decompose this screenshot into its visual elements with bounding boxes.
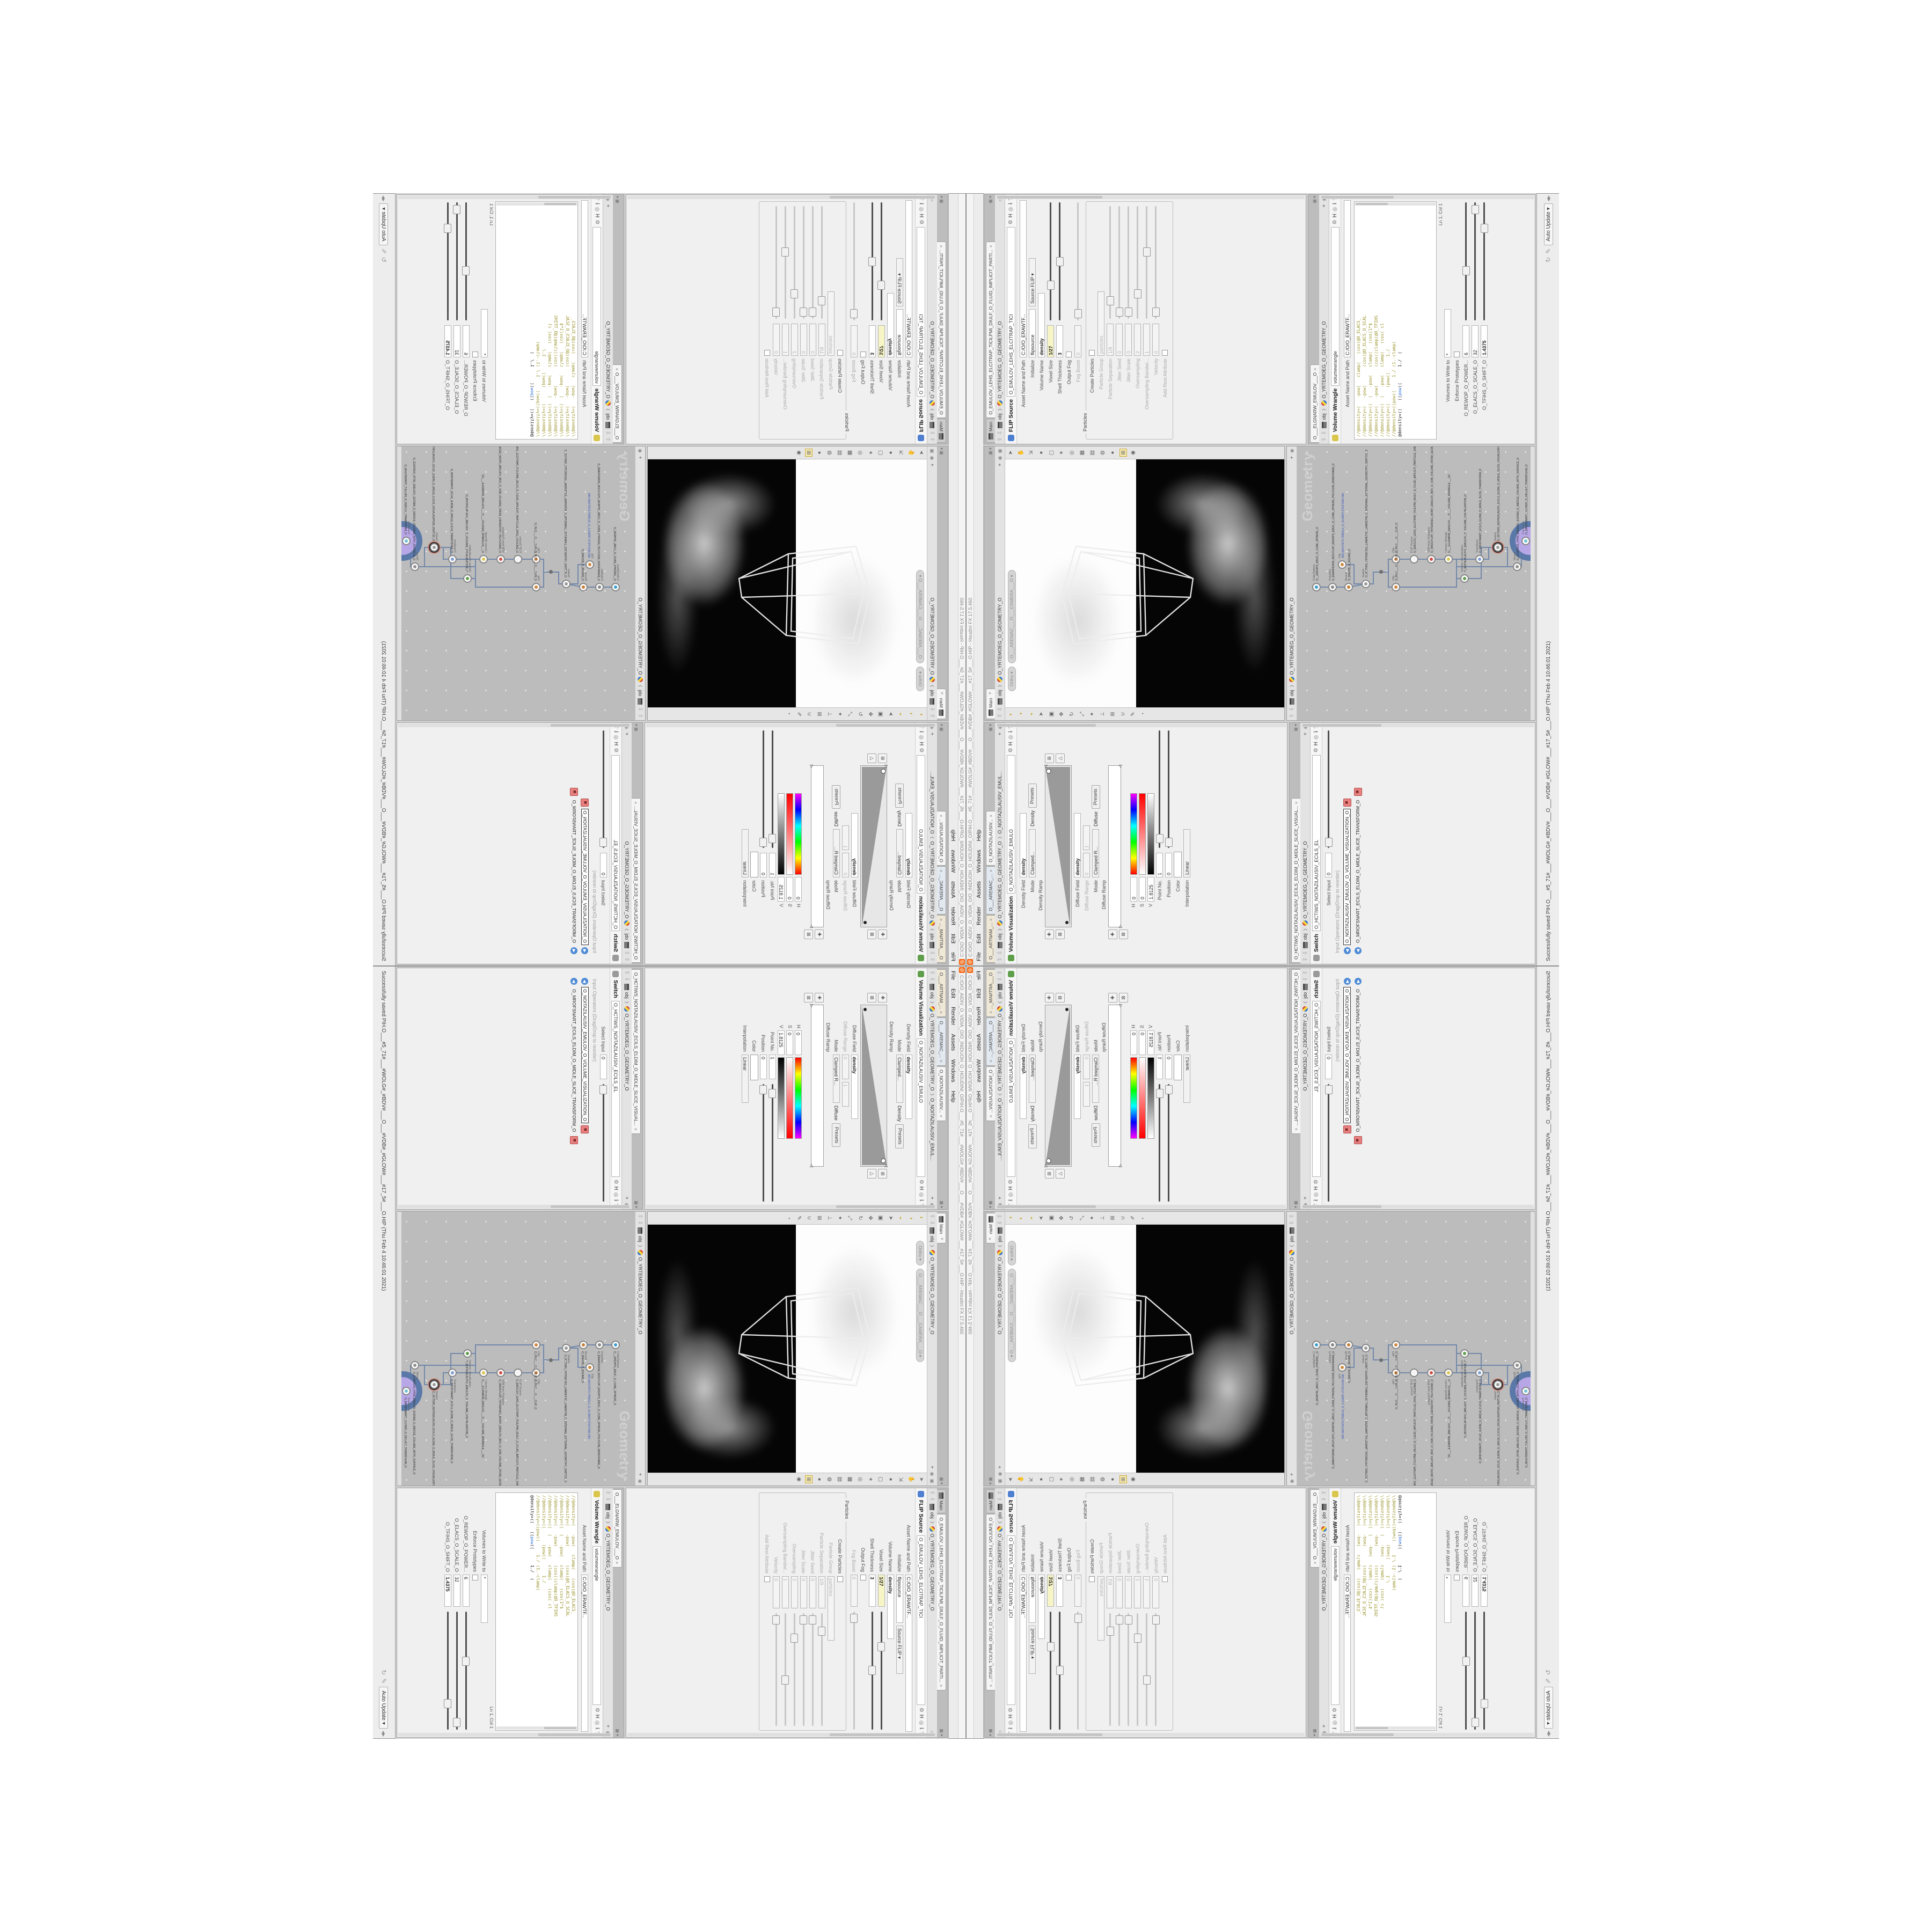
- search-icon[interactable]: ◎: [1313, 1192, 1319, 1197]
- rotate-handle-icon[interactable]: ↻: [856, 1214, 863, 1222]
- scale-slider[interactable]: [1474, 1612, 1476, 1730]
- node-transform[interactable]: [1475, 555, 1484, 563]
- menu-edit[interactable]: Edit: [976, 984, 982, 1002]
- position-slider[interactable]: [763, 730, 764, 848]
- particle-group-input[interactable]: particles: [828, 291, 835, 356]
- node-name-field[interactable]: O_HCTIWS_NOITAZILAUSIV_ECILS_EL: [1312, 1001, 1321, 1177]
- node-merge[interactable]: [1513, 562, 1521, 571]
- close-icon[interactable]: ✕: [990, 1684, 993, 1687]
- view-arrow-icon[interactable]: ➤: [917, 1475, 925, 1483]
- cube-view-icon[interactable]: ▣: [997, 449, 1003, 453]
- cage-display-icon[interactable]: ▦: [1079, 449, 1086, 457]
- point-no-input[interactable]: 1: [769, 853, 776, 877]
- position-input[interactable]: 0: [760, 1055, 767, 1079]
- info-icon[interactable]: ℹ: [594, 203, 600, 205]
- scrollbar[interactable]: [1531, 1212, 1535, 1485]
- close-icon[interactable]: ✕: [1314, 1561, 1318, 1564]
- shaded-lamp-icon[interactable]: ◑: [907, 1214, 914, 1222]
- node-switch[interactable]: [562, 1344, 570, 1352]
- volume-name-input[interactable]: density: [887, 293, 894, 357]
- scale-input[interactable]: 32: [453, 1575, 460, 1607]
- value-gradient-bar[interactable]: [1147, 793, 1154, 875]
- close-icon[interactable]: ✕: [990, 869, 993, 873]
- handle-badge-icon[interactable]: ▣: [876, 1214, 884, 1222]
- nav-up-icon[interactable]: ⇧: [997, 957, 1003, 962]
- tab-flip-source[interactable]: O_EMULOV_LEHS_ELCITRAP_TICILPMI_DIULF_O_…: [986, 1514, 995, 1690]
- node-switch[interactable]: [1494, 543, 1502, 552]
- node-switch[interactable]: [1362, 1344, 1370, 1352]
- fog-boost-slider[interactable]: [1077, 202, 1079, 320]
- tab-main[interactable]: Main: [986, 1489, 995, 1513]
- projection-pill[interactable]: Ortho ▾: [916, 667, 924, 691]
- node-transform[interactable]: [402, 1387, 411, 1395]
- node-switch[interactable]: [1362, 580, 1370, 588]
- oversampling-slider[interactable]: [1137, 1613, 1138, 1726]
- snap-grid-icon[interactable]: ⊞: [815, 710, 823, 718]
- gear-icon[interactable]: ⚙: [918, 1180, 924, 1184]
- scrollbar[interactable]: [1355, 1726, 1436, 1730]
- select-arrow-icon[interactable]: ➤: [887, 1214, 894, 1222]
- oversampling-input[interactable]: 2: [1134, 1576, 1141, 1608]
- reorder-icon[interactable]: ◀: [582, 978, 589, 985]
- pane-tab-controls-icon[interactable]: ▦ ▾: [1312, 196, 1317, 203]
- presets-button[interactable]: Presets: [896, 1124, 904, 1148]
- projection-pill[interactable]: Ortho ▾: [1008, 667, 1016, 691]
- persp-camera-icon[interactable]: ◉: [1130, 449, 1137, 457]
- jitter-seed-slider[interactable]: [812, 1613, 814, 1726]
- asset-path-field[interactable]: C:/O/O_ERAWTF...: [1020, 1575, 1027, 1732]
- torus-prim-icon[interactable]: ◎: [1069, 1475, 1076, 1483]
- camera-pill[interactable]: O___AREMAC___O___CAMERA___O ▾: [916, 1269, 924, 1362]
- power-slider[interactable]: [1465, 202, 1467, 320]
- reorder-icon[interactable]: ◀: [1355, 947, 1362, 954]
- search-icon[interactable]: ◎: [613, 735, 619, 740]
- value-input[interactable]: 1.8125: [1147, 1030, 1154, 1055]
- color-swatch[interactable]: [750, 1055, 758, 1080]
- shift-slider[interactable]: [1483, 202, 1485, 320]
- pan-hand-icon[interactable]: ✋: [1018, 1475, 1025, 1483]
- search-icon[interactable]: ◎: [594, 1721, 600, 1725]
- ramp-handle-icon[interactable]: ◁: [1118, 1164, 1123, 1167]
- shell-thickness-input[interactable]: 3: [1056, 1575, 1063, 1607]
- handle-badge-icon[interactable]: ▣: [1048, 710, 1056, 718]
- recook-icon[interactable]: ↻: [380, 257, 387, 262]
- breadcrumb-root[interactable]: obj: [997, 690, 1002, 696]
- diffuse-ramp-widget[interactable]: ✚⊠ ▷ ◁: [1108, 728, 1128, 939]
- density-ramp-gradient[interactable]: ◁: [1045, 1005, 1072, 1167]
- nav-up-icon[interactable]: ⇧: [930, 970, 935, 975]
- nav-down-icon[interactable]: ⇩: [1302, 950, 1308, 955]
- mode-dropdown[interactable]: Clamped...: [1029, 1055, 1036, 1103]
- breadcrumb-root[interactable]: obj: [930, 992, 935, 999]
- view-arrow-icon[interactable]: ➤: [1007, 449, 1015, 457]
- hue-input[interactable]: 0: [795, 1030, 802, 1055]
- breadcrumb-node[interactable]: O_YRTEMOEG_O_GEOMETRY_O: [638, 1257, 643, 1335]
- network-canvas[interactable]: Geometry CubeSphereO__EREHPS_EBUC_O_CUBE…: [1297, 1212, 1531, 1485]
- value-gradient-bar[interactable]: [1147, 1057, 1154, 1139]
- info-icon[interactable]: ℹ: [1008, 203, 1014, 205]
- oversampling-input[interactable]: 2: [1134, 324, 1141, 356]
- menu-windows[interactable]: Windows: [950, 1055, 957, 1087]
- particle-group-input[interactable]: particles: [1097, 1576, 1104, 1641]
- breadcrumb-root[interactable]: obj: [1321, 413, 1327, 420]
- asset-path-field[interactable]: C:/O/O_ERAWTF...: [905, 1575, 912, 1732]
- pin-icon[interactable]: ✦: [624, 1196, 630, 1201]
- interpolation-dropdown[interactable]: Linear: [1183, 829, 1190, 877]
- headlight-icon[interactable]: ◐: [1007, 1214, 1015, 1222]
- tab-mantra[interactable]: O___ARTNAM_...✕: [937, 969, 946, 1017]
- headlight-icon[interactable]: ◐: [917, 1214, 925, 1222]
- input-operator-0[interactable]: O_NOITAZILAUSIV_EMULOV_O_VOLUME_VISUALIZ…: [1343, 987, 1351, 1123]
- density-field-input[interactable]: density: [905, 1055, 912, 1119]
- breadcrumb-root[interactable]: obj: [997, 933, 1002, 940]
- search-icon[interactable]: ◎: [594, 207, 600, 211]
- pin-icon[interactable]: ✦: [605, 1724, 611, 1729]
- follow-icon[interactable]: ◉: [1289, 1479, 1295, 1483]
- tab-visualization[interactable]: O_NOITAZILAUSIV...✕: [986, 1066, 995, 1121]
- node-name-field[interactable]: O_NOITAZILAUSIV_EMULO: [1007, 1038, 1015, 1177]
- particle-separation-input[interactable]: 1/9: [818, 324, 825, 356]
- color-swatch[interactable]: [750, 852, 758, 877]
- nav-up-icon[interactable]: ⇧: [1302, 970, 1308, 975]
- snap-grid-icon[interactable]: ⊞: [1109, 1214, 1117, 1222]
- saturation-input[interactable]: 0: [787, 1030, 794, 1055]
- info-icon[interactable]: ℹ: [1008, 731, 1014, 733]
- scale-input[interactable]: 32: [453, 325, 460, 357]
- breadcrumb-node[interactable]: O_YRTEMOEG_O_GEOMETRY_O: [930, 1014, 935, 1091]
- select-arrow-icon[interactable]: ➤: [1038, 710, 1045, 718]
- tab-volume-wrangle[interactable]: O___ELGNARW_EMULOV___O✕: [613, 364, 622, 443]
- info-icon[interactable]: ℹ: [1332, 203, 1338, 205]
- close-icon[interactable]: ✕: [990, 1115, 993, 1118]
- jitter-seed-input[interactable]: 0: [1116, 324, 1123, 356]
- scrollbar[interactable]: [496, 1726, 577, 1730]
- projection-pill[interactable]: Ortho ▾: [1008, 1241, 1016, 1265]
- nav-up-icon[interactable]: ⇧: [997, 714, 1003, 718]
- add-point-icon[interactable]: ✚: [1108, 993, 1117, 1002]
- breadcrumb-node[interactable]: O_YRTEMOEG_O_GEOMETRY_O: [1289, 598, 1294, 675]
- diffuse-ramp-widget[interactable]: ✚⊠ ▷ ◁: [804, 993, 824, 1204]
- geometry-sphere-icon[interactable]: ●: [1038, 1475, 1045, 1483]
- voxel-size-input[interactable]: 1/27: [1047, 325, 1054, 357]
- pan-hand-icon[interactable]: ✋: [1018, 449, 1025, 457]
- value-input[interactable]: 1.8125: [778, 1030, 785, 1055]
- sketch-lamp-icon[interactable]: ◒: [897, 1214, 904, 1222]
- pane-tab-controls-icon[interactable]: ▦ ▾: [988, 1477, 993, 1484]
- menu-windows[interactable]: Windows: [976, 1055, 982, 1087]
- node-vdb-from-polygons[interactable]: [1427, 555, 1436, 563]
- gear-icon[interactable]: ⚙: [918, 219, 924, 224]
- follow-icon[interactable]: ◉: [930, 456, 935, 460]
- snap-grid-icon[interactable]: ⊞: [1109, 710, 1117, 718]
- hue-input[interactable]: 0: [1130, 877, 1137, 902]
- menu-edit[interactable]: Edit: [950, 984, 957, 1002]
- saturation-input[interactable]: 0: [787, 877, 794, 902]
- info-icon[interactable]: ℹ: [918, 203, 924, 205]
- initialize-field[interactable]: flipsource: [896, 309, 903, 357]
- close-icon[interactable]: ✕: [990, 1011, 993, 1014]
- breadcrumb-node[interactable]: O_YRTEMOEG_O_GEOMETRY_O: [1321, 321, 1327, 399]
- follow-icon[interactable]: ◉: [638, 449, 643, 453]
- recook-icon[interactable]: ↻: [1545, 1670, 1552, 1675]
- enforce-prototypes-checkbox[interactable]: [1454, 1575, 1460, 1580]
- axis-gnomon-icon[interactable]: ⊥: [825, 710, 833, 718]
- nav-up-icon[interactable]: ⇧: [997, 437, 1003, 442]
- remove-point-icon[interactable]: ⊠: [804, 930, 813, 939]
- ramp-handle-icon[interactable]: ▷: [1118, 1004, 1123, 1007]
- menu-render[interactable]: Render: [950, 1002, 957, 1029]
- breadcrumb-node[interactable]: O_YRTEMOEG_O_GEOMETRY_O: [997, 1257, 1002, 1335]
- scrollbar[interactable]: [496, 202, 577, 206]
- breadcrumb-node[interactable]: O_YRTEMOEG_O_GEOMETRY_O: [638, 598, 643, 675]
- axis-gnomon-icon[interactable]: ⊥: [1099, 710, 1107, 718]
- gear-icon[interactable]: ⚙: [1332, 1708, 1338, 1713]
- wire-cube-icon[interactable]: ▢: [876, 1475, 884, 1483]
- tab-camera[interactable]: O___AREMAC_...✕: [937, 1018, 946, 1066]
- breadcrumb-node[interactable]: O_YRTEMOEG_O_GEOMETRY_O: [605, 1534, 611, 1611]
- info-icon[interactable]: ℹ: [594, 1728, 600, 1730]
- breadcrumb-node[interactable]: O_YRTEMOEG_O_GEOMETRY_O: [605, 321, 611, 399]
- node-merge[interactable]: [411, 1361, 419, 1370]
- velocity-slider[interactable]: [775, 206, 777, 319]
- density-ramp-gradient[interactable]: ◁: [860, 1005, 887, 1167]
- node-volume-wrangle[interactable]: [479, 1368, 488, 1377]
- viewport-canvas[interactable]: ◐◑◒➤▣✥↻⤢✦⊥⊞∪✎◔ ➤✋⇲●▢✶◎▦▤◍●⊞◉: [648, 1212, 927, 1485]
- pin-icon[interactable]: ✦: [1321, 204, 1327, 208]
- nav-up-icon[interactable]: ⇧: [930, 957, 935, 962]
- menu-edit[interactable]: Edit: [950, 930, 957, 948]
- gear-icon[interactable]: ⚙: [1332, 219, 1338, 224]
- particle-group-input[interactable]: particles: [828, 1576, 835, 1641]
- close-icon[interactable]: ✕: [990, 918, 993, 921]
- node-file[interactable]: [586, 560, 594, 569]
- close-icon[interactable]: ✕: [939, 1684, 942, 1687]
- add-rest-checkbox[interactable]: [764, 1576, 770, 1582]
- particle-separation-slider[interactable]: [821, 206, 823, 319]
- jitter-seed-slider[interactable]: [1118, 206, 1120, 319]
- shell-thickness-slider[interactable]: [1059, 1612, 1060, 1730]
- initialize-dropdown[interactable]: Source FLIP ▾: [1029, 1626, 1036, 1674]
- delete-icon[interactable]: ✖: [581, 1125, 589, 1133]
- cube-view-icon[interactable]: ▣: [997, 1479, 1003, 1483]
- breadcrumb-root[interactable]: obj: [605, 413, 611, 420]
- scrollbar[interactable]: [627, 195, 936, 199]
- breadcrumb-root[interactable]: obj: [997, 1512, 1002, 1519]
- nav-up-icon[interactable]: ⇧: [624, 970, 630, 975]
- ramp-handle-icon[interactable]: ◁: [1118, 765, 1123, 768]
- node-volume-visualization[interactable]: [463, 574, 472, 583]
- pane-tab-controls-icon[interactable]: ▦ ▾: [988, 724, 993, 731]
- menu-assets[interactable]: Assets: [976, 1029, 982, 1055]
- node-volume-wrangle[interactable]: [1444, 1368, 1453, 1377]
- tab-visualization[interactable]: O_NOITAZILAUSIV...✕: [986, 811, 995, 866]
- remove-point-icon[interactable]: ⊠: [1119, 993, 1128, 1002]
- breadcrumb-node[interactable]: O_YRTEMOEG_O_GEOMETRY_O: [930, 598, 935, 675]
- diffuse-range-max[interactable]: 1: [1083, 1082, 1090, 1107]
- input-operator-0[interactable]: O_NOITAZILAUSIV_EMULOV_O_VOLUME_VISUALIZ…: [581, 809, 589, 945]
- node-name-field[interactable]: O_NOITAZILAUSIV_EMULO: [917, 755, 926, 894]
- scale-slider[interactable]: [456, 202, 458, 320]
- node-merge[interactable]: [411, 562, 419, 571]
- rotate-handle-icon[interactable]: ↻: [856, 710, 863, 718]
- handle-badge-icon[interactable]: ▣: [1048, 1214, 1056, 1222]
- tab-visualization[interactable]: O_NOITAZILAUSIV...✕: [937, 1066, 946, 1121]
- initialize-field[interactable]: flipsource: [1029, 1575, 1036, 1623]
- presets-button[interactable]: Presets: [1028, 784, 1037, 808]
- diffuse-field-input[interactable]: density: [851, 813, 858, 877]
- select-input-field[interactable]: 0: [600, 1055, 607, 1079]
- delete-icon[interactable]: ✖: [581, 799, 589, 807]
- point-no-slider[interactable]: [1159, 730, 1160, 848]
- menu-help[interactable]: Help: [976, 1087, 982, 1107]
- diffuse-mode-dropdown[interactable]: Clamped R...: [833, 1055, 840, 1103]
- node-name-field[interactable]: O_HCTIWS_NOITAZILAUSIV_ECILS_EL: [612, 1001, 620, 1177]
- follow-icon[interactable]: ◉: [997, 1472, 1003, 1476]
- close-icon[interactable]: ✕: [939, 1011, 942, 1014]
- quad-view-grid-icon[interactable]: ⊞: [1119, 1475, 1127, 1483]
- nav-up-icon[interactable]: ⇧: [930, 1490, 935, 1495]
- menu-file[interactable]: File: [976, 948, 982, 965]
- density-field-input[interactable]: density: [1020, 813, 1027, 877]
- nav-down-icon[interactable]: ⇩: [1321, 430, 1327, 435]
- pin-icon[interactable]: ✦: [1302, 732, 1308, 736]
- jitter-seed-input[interactable]: 0: [1116, 1576, 1123, 1608]
- nav-down-icon[interactable]: ⇩: [997, 707, 1003, 711]
- breadcrumb-root[interactable]: obj: [638, 1236, 643, 1242]
- breadcrumb-node[interactable]: O_YRTEMOEG_O_GEOMETRY_O: [1302, 1014, 1308, 1091]
- info-icon[interactable]: ℹ: [613, 1199, 619, 1202]
- breadcrumb-root[interactable]: obj: [997, 413, 1002, 420]
- cook-brush-icon[interactable]: ✎: [380, 248, 387, 254]
- position-slider[interactable]: [1168, 730, 1169, 848]
- projection-pill[interactable]: Ortho ▾: [916, 1241, 924, 1265]
- breadcrumb-node[interactable]: O_YRTEMOEG_O_GEOMETRY_O: [997, 1014, 1002, 1091]
- scrollbar[interactable]: [646, 723, 936, 727]
- breadcrumb-root[interactable]: obj: [930, 933, 935, 940]
- pane-tab-controls-icon[interactable]: ▦ ▾: [616, 1729, 620, 1736]
- input-operator-1[interactable]: O_MROFSNART_ECILS_ELDIM_O_MIDLE_SLICE_TR…: [570, 987, 578, 1134]
- jitter-seed-input[interactable]: 0: [809, 1576, 816, 1608]
- particle-separation-input[interactable]: 1/9: [1107, 1576, 1114, 1608]
- scale-handle-icon[interactable]: ⤢: [846, 710, 853, 718]
- cube-view-icon[interactable]: ▣: [930, 1479, 935, 1483]
- close-icon[interactable]: ✕: [990, 245, 993, 248]
- radial-menu-icon[interactable]: ◔: [785, 710, 792, 718]
- shaded-lamp-icon[interactable]: ◑: [1018, 710, 1025, 718]
- vex-snippet-editor[interactable]: //@density=( -pow( clamp( (cos(@O_ELACS_…: [1354, 1492, 1437, 1731]
- scale-slider[interactable]: [456, 1612, 458, 1730]
- reorder-icon[interactable]: ◀: [1344, 947, 1351, 954]
- interpolation-dropdown[interactable]: Linear: [742, 829, 749, 877]
- breadcrumb-node[interactable]: O_YRTEMOEG_O_GEOMETRY_O: [997, 321, 1002, 399]
- velocity-input[interactable]: 0: [1152, 324, 1159, 356]
- dolly-view-icon[interactable]: ⇲: [1028, 449, 1035, 457]
- diffuse-mode-dropdown[interactable]: Clamped R...: [1092, 1055, 1099, 1103]
- gear-icon[interactable]: ⚙: [1008, 219, 1014, 224]
- close-icon[interactable]: ✕: [1314, 368, 1318, 371]
- scrollbar[interactable]: [1301, 723, 1534, 727]
- handle-badge-icon[interactable]: ▣: [876, 710, 884, 718]
- fog-boost-slider[interactable]: [853, 202, 855, 320]
- node-clip[interactable]: [532, 1341, 540, 1349]
- move-handle-icon[interactable]: ✥: [866, 710, 874, 718]
- diffuse-field-input[interactable]: density: [851, 1055, 858, 1119]
- oversampling-bandwidth-slider[interactable]: [1146, 1613, 1147, 1726]
- node-cubesphere[interactable]: [1312, 583, 1321, 591]
- sketch-lamp-icon[interactable]: ◒: [1028, 710, 1035, 718]
- node-name-field[interactable]: O_NOITAZILAUSIV_EMULO: [1007, 755, 1015, 894]
- diffuse-range-min[interactable]: 0: [842, 853, 849, 877]
- diffuse-range-max[interactable]: 1: [842, 1082, 849, 1107]
- mode-dropdown[interactable]: Clamped...: [896, 1055, 903, 1103]
- scale-input[interactable]: 32: [1472, 325, 1479, 357]
- hue-input[interactable]: 0: [1130, 1030, 1137, 1055]
- follow-icon[interactable]: ◉: [1289, 449, 1295, 453]
- breadcrumb-root[interactable]: obj: [930, 413, 935, 420]
- value-input[interactable]: 1.8125: [1147, 877, 1154, 902]
- add-point-icon[interactable]: ✚: [1045, 930, 1054, 939]
- scrollbar[interactable]: [398, 195, 612, 199]
- node-name-field[interactable]: O_EMULOV_LEHS_ELCITRAP_TICI: [917, 227, 926, 397]
- snap-grid-icon[interactable]: ⊞: [815, 1214, 823, 1222]
- jitter-seed-slider[interactable]: [1118, 1613, 1120, 1726]
- node-vdb-from-polygons[interactable]: [496, 555, 505, 563]
- spotlight-icon[interactable]: ◍: [825, 449, 833, 457]
- node-transform[interactable]: [1521, 537, 1530, 545]
- breadcrumb-root[interactable]: obj: [1289, 690, 1294, 696]
- node-volume-wrangle[interactable]: [1444, 555, 1453, 563]
- close-icon[interactable]: ✕: [937, 1237, 946, 1240]
- node-merge[interactable]: [1513, 1361, 1521, 1370]
- ramp-handle-icon[interactable]: ◁: [1043, 765, 1048, 768]
- dark-matcap-icon[interactable]: ●: [815, 449, 823, 457]
- volume-name-input[interactable]: density: [1038, 293, 1045, 357]
- scrollbar[interactable]: [1531, 447, 1535, 720]
- shell-thickness-input[interactable]: 3: [869, 325, 876, 357]
- pose-handle-icon[interactable]: ✦: [836, 710, 843, 718]
- axis-gnomon-icon[interactable]: ⊥: [1099, 1214, 1107, 1222]
- info-icon[interactable]: ℹ: [1313, 1199, 1319, 1202]
- node-volume-visualization[interactable]: [1460, 1349, 1469, 1358]
- diffuse-range-min[interactable]: 0: [842, 1055, 849, 1079]
- velocity-slider[interactable]: [1155, 1613, 1157, 1726]
- node-clip[interactable]: [1392, 583, 1400, 591]
- ramp-view-icon[interactable]: ⊞: [1045, 753, 1054, 763]
- scrollbar[interactable]: [1301, 1205, 1534, 1209]
- info-icon[interactable]: ℹ: [1008, 1199, 1014, 1202]
- breadcrumb-root[interactable]: obj: [624, 992, 630, 999]
- pane-tab-controls-icon[interactable]: ▦ ▾: [1293, 724, 1298, 731]
- nav-down-icon[interactable]: ⇩: [997, 1220, 1003, 1225]
- spotlight-icon[interactable]: ◍: [1099, 449, 1107, 457]
- cook-brush-icon[interactable]: ✎: [1545, 1678, 1552, 1684]
- select-arrow-icon[interactable]: ➤: [887, 710, 894, 718]
- dark-matcap-icon[interactable]: ●: [815, 1475, 823, 1483]
- pin-icon[interactable]: ✦: [1289, 1473, 1295, 1477]
- radial-menu-icon[interactable]: ◔: [1140, 1214, 1147, 1222]
- breadcrumb-node[interactable]: O_YRTEMOEG_O_GEOMETRY_O: [1302, 841, 1308, 919]
- fog-boost-slider[interactable]: [853, 1612, 855, 1730]
- scrollbar[interactable]: [627, 1733, 936, 1737]
- node-bound[interactable]: [579, 1341, 588, 1349]
- camera-pill[interactable]: O___AREMAC___O___CAMERA___O ▾: [1008, 570, 1016, 663]
- pin-icon[interactable]: ✦: [930, 1465, 935, 1469]
- node-transform[interactable]: [1521, 1387, 1530, 1395]
- voxel-size-slider[interactable]: [1050, 1612, 1051, 1730]
- remove-point-icon[interactable]: ⊠: [804, 993, 813, 1002]
- power-input[interactable]: 6: [463, 325, 470, 357]
- pane-tab-controls-icon[interactable]: ▦ ▾: [940, 1477, 945, 1484]
